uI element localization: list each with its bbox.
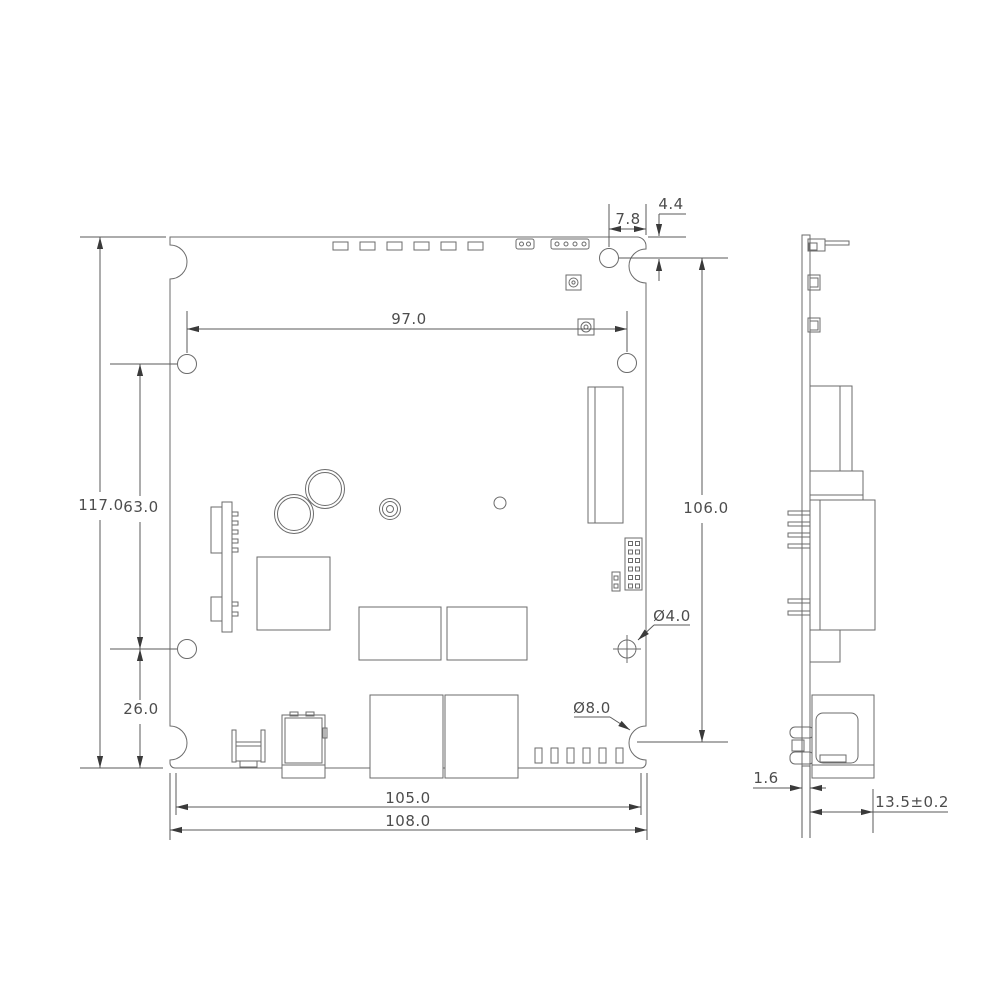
dim-label-edge-notch-diameter: Ø8.0 [573, 699, 611, 717]
left-connector [211, 502, 238, 632]
dim-label-bottom-left-hole-offset: 26.0 [123, 700, 158, 718]
mounting-hole-dimensioned [613, 635, 641, 663]
top-edge-pads [333, 242, 483, 250]
bottom-edge-pads [535, 748, 623, 763]
capacitor-1 [275, 495, 314, 534]
left-connector-side [788, 500, 875, 662]
board-side-view [788, 235, 875, 778]
mid-module-1 [359, 607, 441, 660]
mounting-hole-top-left [178, 355, 197, 374]
ufl-connector-2 [578, 319, 594, 335]
ethernet-jack-1 [370, 695, 443, 778]
main-ic [257, 557, 330, 630]
mounting-hole-top-right-corner [600, 249, 619, 268]
header-2pin-top [516, 239, 534, 249]
dim-label-top-hole-span: 97.0 [391, 310, 426, 328]
header-1x2 [612, 572, 620, 591]
dim-label-left-hole-span: 63.0 [123, 498, 158, 516]
usb-connector [282, 712, 327, 778]
header-2x6 [625, 538, 642, 590]
dim-label-connector-height: 13.5±0.2 [875, 793, 949, 811]
header-4pin-top [551, 239, 589, 249]
pcb-dimension-drawing: 117.0 63.0 26.0 97.0 7.8 4.4 106.0 Ø4.0 … [0, 0, 1000, 1000]
dim-label-pcb-thickness: 1.6 [753, 769, 778, 787]
dim-label-right-vertical-span: 106.0 [683, 499, 728, 517]
dim-label-mounting-hole-diameter: Ø4.0 [653, 607, 691, 625]
capacitor-small [380, 499, 401, 520]
ufl-connector-1 [566, 275, 581, 290]
dim-label-board-width: 108.0 [385, 812, 430, 830]
mounting-hole-bottom-left [178, 640, 197, 659]
dim-label-bottom-span: 105.0 [385, 789, 430, 807]
mounting-hole-top-right [618, 354, 637, 373]
tall-connector-side [810, 386, 863, 500]
capacitor-2 [306, 470, 345, 509]
pcb-edge [802, 235, 810, 766]
right-tall-connector [588, 387, 623, 523]
mid-module-2 [447, 607, 527, 660]
dim-label-corner-hole-offset-y: 4.4 [658, 195, 683, 213]
ethernet-jack-2 [445, 695, 518, 778]
antenna-connector-side [808, 239, 849, 251]
dim-label-corner-hole-offset-x: 7.8 [615, 210, 640, 228]
via-hole [494, 497, 506, 509]
drawing-page: 117.0 63.0 26.0 97.0 7.8 4.4 106.0 Ø4.0 … [0, 0, 1000, 1000]
power-jack [232, 730, 265, 767]
dim-label-board-height: 117.0 [78, 496, 123, 514]
